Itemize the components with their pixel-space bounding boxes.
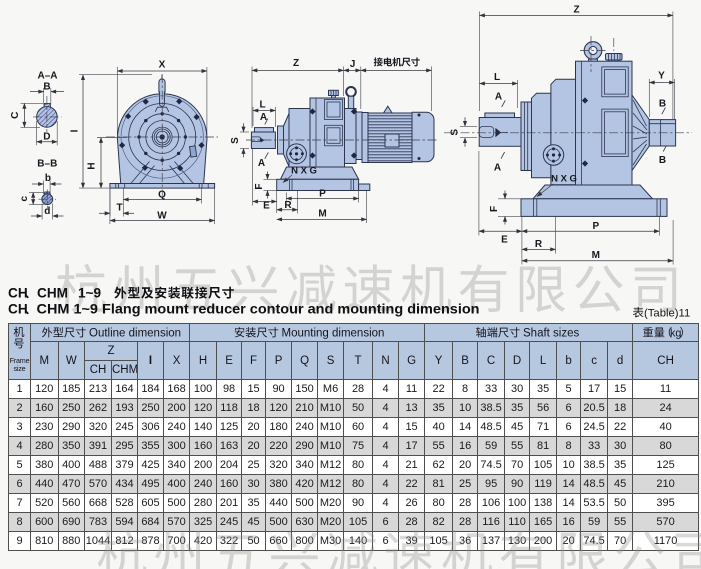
svg-text:CHM: CHM <box>37 286 68 301</box>
svg-text:I: I <box>70 129 81 132</box>
svg-text:F: F <box>254 183 265 189</box>
svg-text:M: M <box>592 250 600 261</box>
svg-text:CHM 1~9 Flang mount reducer co: CHM 1~9 Flang mount reducer contour and … <box>37 302 480 317</box>
svg-text:J: J <box>350 59 356 70</box>
svg-text:Q: Q <box>158 190 166 201</box>
svg-text:P: P <box>319 189 326 200</box>
svg-text:R: R <box>284 200 292 211</box>
svg-text:R: R <box>535 239 543 250</box>
svg-text:H: H <box>87 162 98 169</box>
svg-text:(Table)11: (Table)11 <box>644 308 690 320</box>
svg-text:CH: CH <box>8 302 28 317</box>
svg-text:S: S <box>230 137 241 144</box>
svg-text:N X G: N X G <box>551 174 577 185</box>
svg-text:S: S <box>450 129 461 136</box>
svg-text:A: A <box>494 163 501 174</box>
svg-text:Y: Y <box>658 71 665 82</box>
svg-text:X: X <box>159 60 166 71</box>
svg-text:c: c <box>19 195 30 201</box>
svg-text:A–A: A–A <box>37 71 57 82</box>
svg-text:B: B <box>659 155 666 166</box>
svg-text:A: A <box>495 92 502 103</box>
svg-text:A: A <box>258 158 265 169</box>
svg-text:E: E <box>501 235 508 246</box>
svg-text:C: C <box>10 112 21 119</box>
svg-text:T: T <box>116 203 122 214</box>
svg-text:M: M <box>318 209 326 220</box>
svg-text:CH: CH <box>8 286 28 301</box>
svg-text:B: B <box>43 82 50 93</box>
svg-text:L: L <box>259 100 265 111</box>
svg-text:N X G: N X G <box>291 166 317 177</box>
svg-text:Z: Z <box>293 58 299 69</box>
svg-text:Z: Z <box>573 5 579 16</box>
svg-text:B–B: B–B <box>37 159 57 170</box>
svg-text:W: W <box>157 210 167 221</box>
svg-text:F: F <box>489 206 500 212</box>
svg-text:E: E <box>263 201 270 212</box>
svg-text:P: P <box>592 221 599 232</box>
svg-text:1~9: 1~9 <box>78 286 101 301</box>
svg-text:L: L <box>494 72 500 83</box>
svg-text:D: D <box>43 132 50 143</box>
svg-text:d: d <box>44 206 50 217</box>
